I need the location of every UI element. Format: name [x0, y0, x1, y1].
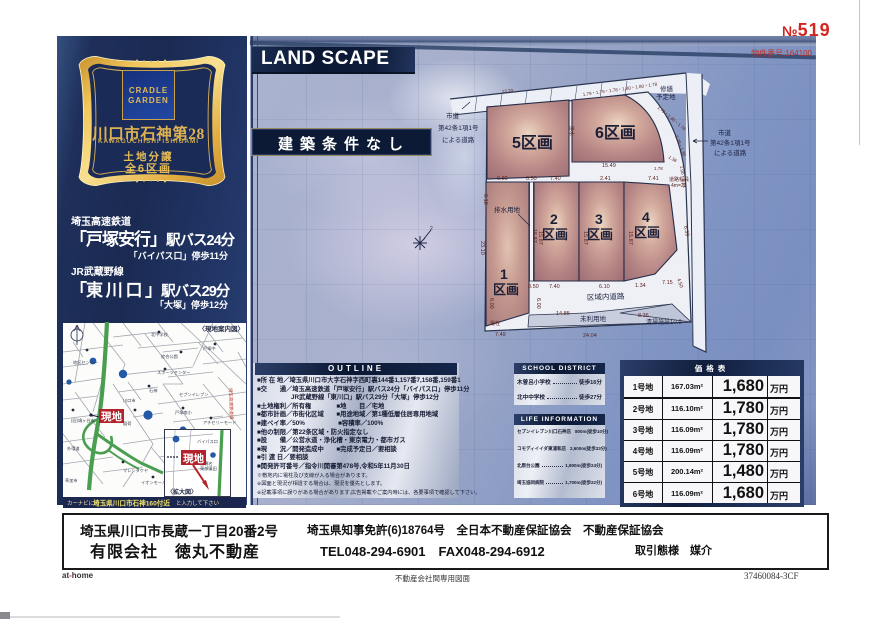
- svg-text:カーナビに: カーナビに: [67, 499, 94, 507]
- svg-text:区画: 区画: [542, 227, 568, 242]
- svg-text:7.40: 7.40: [550, 176, 561, 182]
- svg-text:清掃施設10.9: 清掃施設10.9: [646, 318, 682, 326]
- svg-text:2: 2: [430, 226, 433, 232]
- svg-text:15.87: 15.87: [582, 231, 588, 245]
- svg-text:7.41: 7.41: [648, 176, 659, 182]
- svg-text:戸塚中: 戸塚中: [203, 345, 216, 352]
- svg-text:川口市: 川口市: [123, 397, 136, 404]
- svg-text:3: 3: [595, 211, 603, 227]
- svg-text:8.36: 8.36: [638, 313, 649, 319]
- svg-text:市道: 市道: [446, 111, 460, 120]
- svg-text:道路幅員: 道路幅員: [669, 176, 689, 183]
- svg-text:北中学校: 北中学校: [151, 331, 169, 338]
- svg-text:区画: 区画: [587, 227, 613, 242]
- svg-text:1.78: 1.78: [654, 166, 663, 171]
- svg-text:埼玉県川口市石神160付近: 埼玉県川口市石神160付近: [93, 499, 170, 508]
- svg-text:2: 2: [550, 211, 558, 227]
- svg-text:7.15: 7.15: [662, 280, 673, 286]
- svg-text:2.41: 2.41: [600, 176, 611, 182]
- svg-text:イオンモール: イオンモール: [141, 480, 166, 485]
- svg-text:と入力して下さい: と入力して下さい: [176, 499, 219, 507]
- svg-text:4m=22: 4m=22: [671, 183, 687, 189]
- svg-text:現地: 現地: [183, 452, 204, 465]
- svg-text:0.50: 0.50: [528, 284, 539, 290]
- svg-text:バイパス口: バイパス口: [197, 439, 218, 444]
- svg-text:第42条1項1号: 第42条1項1号: [438, 123, 479, 132]
- svg-text:電柱: 電柱: [490, 320, 500, 327]
- svg-text:14.85: 14.85: [556, 311, 570, 317]
- svg-text:修繕: 修繕: [660, 84, 674, 93]
- svg-text:マレシタケヤ: マレシタケヤ: [123, 467, 148, 474]
- svg-text:現地: 現地: [101, 410, 122, 423]
- svg-text:6区画: 6区画: [595, 124, 636, 142]
- svg-text:排水: 排水: [568, 126, 575, 136]
- svg-text:1: 1: [500, 266, 508, 282]
- svg-text:7.40: 7.40: [549, 284, 560, 290]
- svg-text:6.00: 6.00: [535, 298, 541, 309]
- svg-text:石神: 石神: [149, 387, 157, 394]
- svg-text:6.80: 6.80: [497, 176, 508, 182]
- svg-text:15.87: 15.87: [531, 229, 537, 243]
- svg-text:区画: 区画: [493, 282, 519, 297]
- svg-text:24.04: 24.04: [583, 333, 597, 339]
- svg-text:区域内道路: 区域内道路: [587, 291, 625, 302]
- svg-text:〈拡大図〉: 〈拡大図〉: [167, 488, 197, 496]
- svg-text:6.00: 6.00: [488, 298, 494, 309]
- svg-text:戸塚南小: 戸塚南小: [175, 409, 193, 416]
- svg-text:〈現地案内図〉: 〈現地案内図〉: [199, 324, 245, 333]
- svg-text:7.49: 7.49: [495, 332, 506, 338]
- svg-text:による道路: による道路: [442, 135, 475, 144]
- svg-text:未利用地: 未利用地: [580, 314, 607, 323]
- svg-text:6.10: 6.10: [599, 284, 610, 290]
- svg-text:外環道: 外環道: [67, 445, 80, 452]
- svg-text:15.49: 15.49: [602, 163, 616, 169]
- svg-text:区画: 区画: [634, 225, 660, 240]
- svg-text:0.50: 0.50: [526, 176, 537, 182]
- svg-text:東部蓮田: 東部蓮田: [200, 465, 217, 472]
- svg-text:排水用地: 排水用地: [494, 205, 521, 214]
- svg-text:5区画: 5区画: [512, 134, 553, 152]
- svg-text:15.87: 15.87: [627, 231, 633, 245]
- svg-text:予定地: 予定地: [656, 92, 676, 101]
- svg-text:市道: 市道: [718, 128, 732, 137]
- svg-text:0.18: 0.18: [482, 194, 488, 205]
- svg-text:1.34: 1.34: [635, 283, 646, 289]
- svg-text:による道路: による道路: [714, 148, 747, 157]
- svg-text:草加市: 草加市: [65, 477, 78, 484]
- svg-text:4: 4: [642, 209, 650, 225]
- svg-text:地区センター: 地区センター: [73, 359, 98, 366]
- svg-text:23.10: 23.10: [479, 241, 485, 255]
- svg-text:スポーツセンター: スポーツセンター: [157, 369, 190, 376]
- svg-text:第42条1項1号: 第42条1項1号: [710, 138, 751, 147]
- svg-text:綜合公園: 綜合公園: [161, 353, 178, 360]
- svg-text:(旧)鳩ヶ谷市: (旧)鳩ヶ谷市: [71, 417, 95, 424]
- svg-text:稲荷: 稲荷: [123, 420, 131, 427]
- svg-text:セブンイレブン: セブンイレブン: [179, 391, 208, 397]
